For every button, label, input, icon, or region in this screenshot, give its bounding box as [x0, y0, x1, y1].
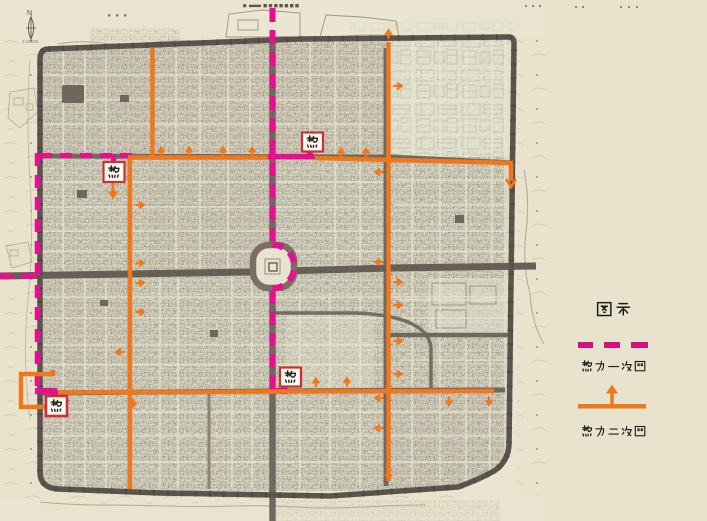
- svg-text:1:10000: 1:10000: [22, 39, 39, 44]
